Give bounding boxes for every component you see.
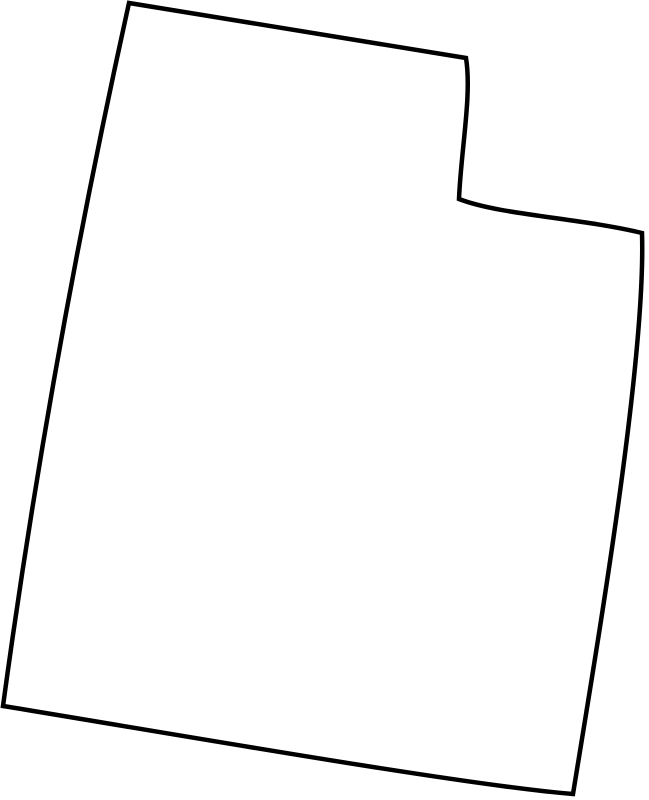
page-background — [0, 0, 649, 800]
map-canvas — [0, 0, 649, 800]
utah-state-outline — [3, 3, 642, 794]
